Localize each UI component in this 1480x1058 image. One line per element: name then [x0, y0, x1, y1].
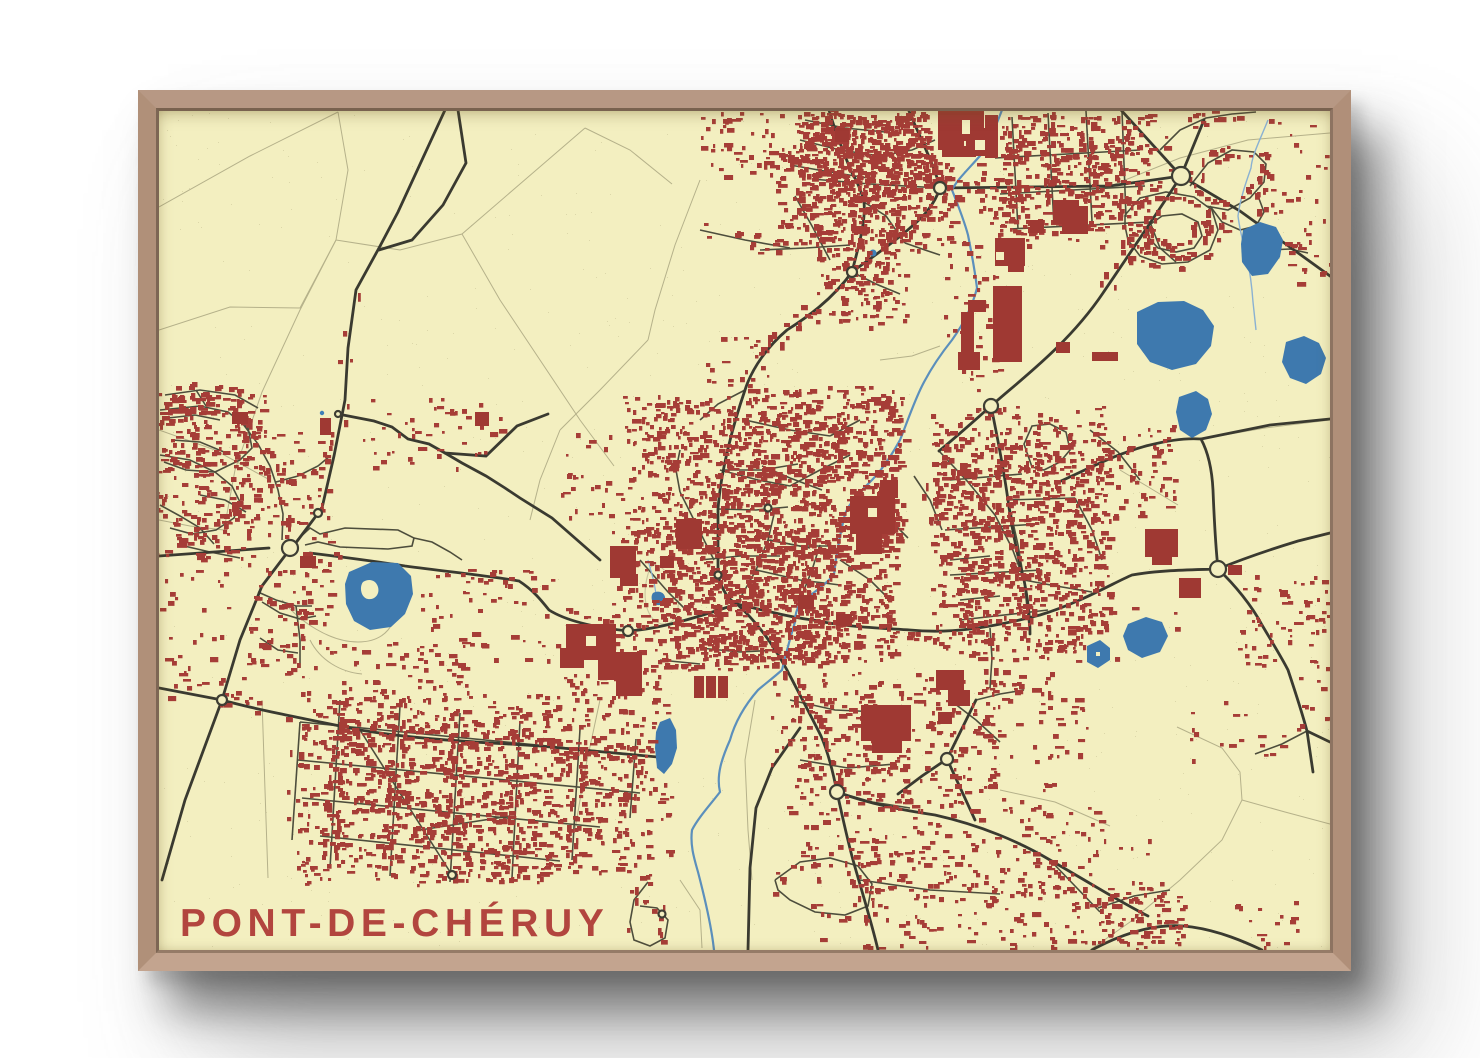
- svg-text:PONT-DE-CHÉRUY: PONT-DE-CHÉRUY: [180, 901, 609, 945]
